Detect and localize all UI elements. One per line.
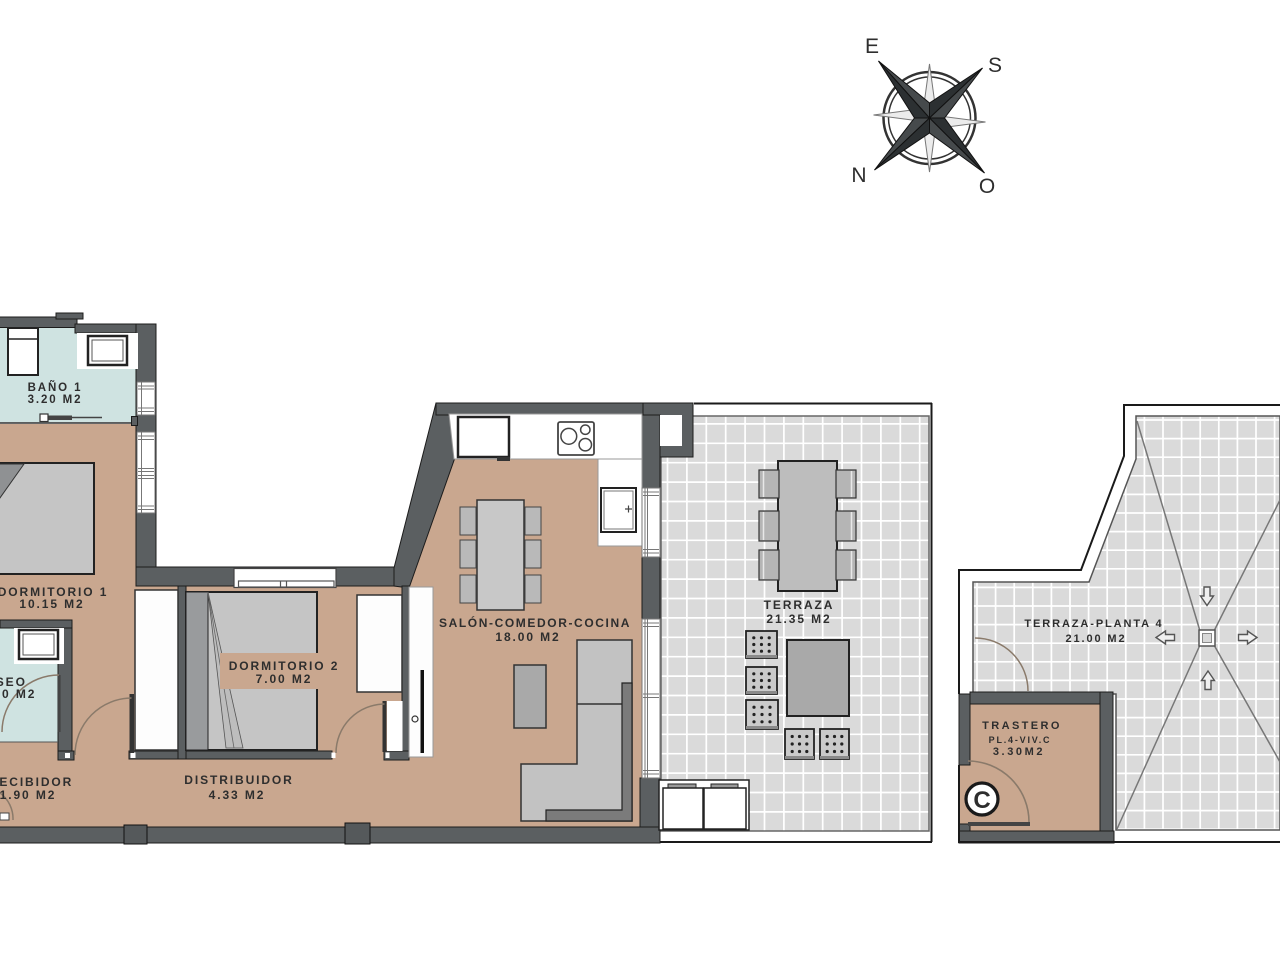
svg-text:DORMITORIO 2: DORMITORIO 2 bbox=[229, 659, 340, 673]
svg-text:21.35 M2: 21.35 M2 bbox=[766, 612, 831, 626]
svg-text:DISTRIBUIDOR: DISTRIBUIDOR bbox=[184, 773, 293, 787]
svg-text:3.30M2: 3.30M2 bbox=[993, 746, 1045, 758]
svg-text:SALÓN-COMEDOR-COCINA: SALÓN-COMEDOR-COCINA bbox=[439, 615, 631, 630]
svg-text:S: S bbox=[988, 54, 1002, 77]
svg-text:21.00 M2: 21.00 M2 bbox=[1065, 633, 1126, 645]
svg-text:O: O bbox=[979, 175, 995, 198]
svg-text:1.90 M2: 1.90 M2 bbox=[0, 788, 56, 802]
svg-text:1.50 M2: 1.50 M2 bbox=[0, 687, 36, 701]
svg-text:RECIBIDOR: RECIBIDOR bbox=[0, 775, 73, 789]
svg-text:TRASTERO: TRASTERO bbox=[982, 720, 1062, 732]
svg-text:BAÑO 1: BAÑO 1 bbox=[28, 381, 83, 394]
svg-text:4.33 M2: 4.33 M2 bbox=[209, 788, 266, 802]
svg-text:3.20 M2: 3.20 M2 bbox=[28, 394, 83, 406]
svg-text:PL.4-VIV.C: PL.4-VIV.C bbox=[989, 735, 1052, 745]
svg-text:10.15 M2: 10.15 M2 bbox=[19, 597, 84, 611]
svg-text:TERRAZA-PLANTA 4: TERRAZA-PLANTA 4 bbox=[1024, 618, 1163, 630]
svg-text:18.00 M2: 18.00 M2 bbox=[495, 630, 560, 644]
svg-text:E: E bbox=[865, 35, 879, 58]
svg-text:7.00 M2: 7.00 M2 bbox=[256, 672, 313, 686]
svg-text:TERRAZA: TERRAZA bbox=[764, 598, 835, 612]
svg-text:C: C bbox=[973, 787, 990, 814]
svg-text:N: N bbox=[851, 164, 866, 187]
